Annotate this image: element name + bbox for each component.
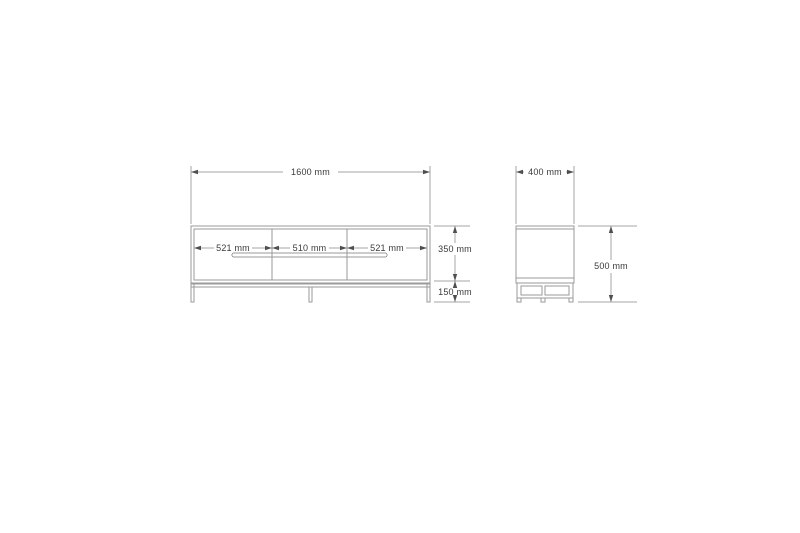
side-foot-middle [541,298,545,302]
arrowhead-right-icon [423,170,430,174]
arrowhead-up-icon [609,226,613,233]
arrowhead-right-icon [340,246,347,250]
front-leg-height-label: 150 mm [438,287,472,297]
dim-front-leg-height: 150 mm [434,281,472,302]
arrowhead-right-icon [567,170,574,174]
dim-side-overall-height: 500 mm [578,226,637,302]
arrowhead-down-icon [453,274,457,281]
front-overall-width-label: 1600 mm [291,167,330,177]
arrowhead-down-icon [609,295,613,302]
front-leg-left [191,283,194,302]
side-foot-left [517,298,521,302]
arrowhead-right-icon [265,246,272,250]
technical-drawing-page: 1600 mm 521 mm 510 mm [0,0,800,533]
arrowhead-right-icon [420,246,427,250]
front-view [191,226,430,302]
side-leg-frame-opening-right [545,286,569,295]
dim-front-middle-section: 510 mm [272,243,347,253]
arrowhead-left-icon [194,246,201,250]
front-left-door-width-label: 521 mm [216,243,250,253]
front-handle-groove [232,253,387,257]
dim-front-body-height: 350 mm [434,226,472,281]
side-overall-height-label: 500 mm [594,261,628,271]
side-body-outline [516,226,574,283]
arrowhead-up-icon [453,226,457,233]
tv-stand-dimension-diagram: 1600 mm 521 mm 510 mm [0,0,800,533]
arrowhead-left-icon [347,246,354,250]
side-view [516,226,574,302]
dim-side-depth: 400 mm [516,166,574,224]
dim-front-overall-width: 1600 mm [191,166,430,224]
front-body-height-label: 350 mm [438,244,472,254]
arrowhead-left-icon [191,170,198,174]
front-leg-right [427,283,430,302]
side-depth-label: 400 mm [528,167,562,177]
side-foot-right [569,298,573,302]
front-middle-width-label: 510 mm [293,243,327,253]
dim-front-left-door: 521 mm [194,243,272,253]
side-leg-frame-opening-left [521,286,542,295]
arrowhead-left-icon [516,170,523,174]
front-right-door-width-label: 521 mm [370,243,404,253]
dim-front-right-door: 521 mm [347,243,427,253]
arrowhead-left-icon [272,246,279,250]
side-view-dimensions: 400 mm 500 mm [516,166,637,302]
front-leg-middle [309,287,312,302]
front-body-outer-outline [191,226,430,283]
front-body-inner-outline [194,229,427,280]
